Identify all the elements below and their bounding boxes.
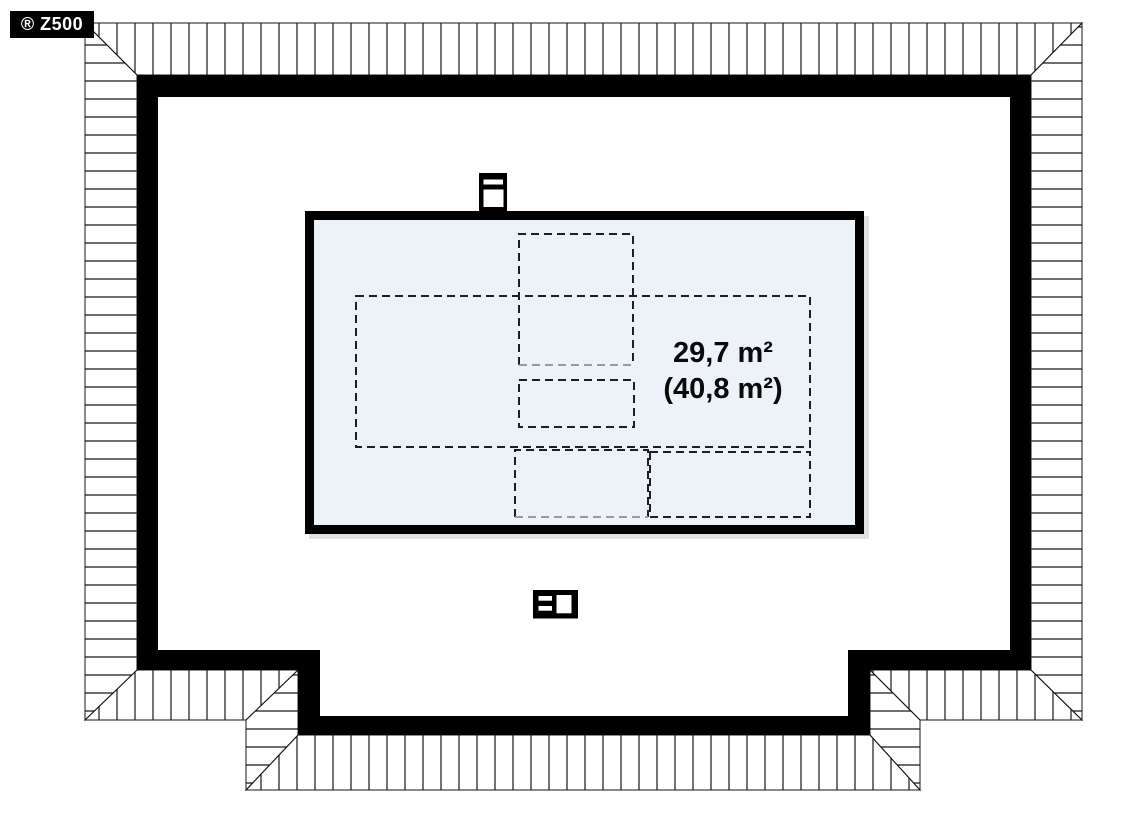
chimney-icon-bottom: [533, 590, 578, 619]
brand-badge-label: ® Z500: [21, 14, 83, 35]
roof-band-left: [85, 23, 137, 720]
roof-band-top: [85, 23, 1082, 75]
brand-badge: ® Z500: [10, 11, 94, 38]
attic-floor-plan: 29,7 m² (40,8 m²): [0, 0, 1122, 820]
floor-plan-canvas: ® Z500: [0, 0, 1122, 820]
attic-room: [305, 211, 869, 539]
usable-area-label: 29,7 m²: [673, 337, 773, 369]
roof-band-right: [1031, 23, 1082, 720]
roof-band-protrusion-bottom: [246, 735, 920, 790]
total-area-label: (40,8 m²): [663, 373, 782, 405]
chimney-icon-top: [479, 173, 507, 212]
